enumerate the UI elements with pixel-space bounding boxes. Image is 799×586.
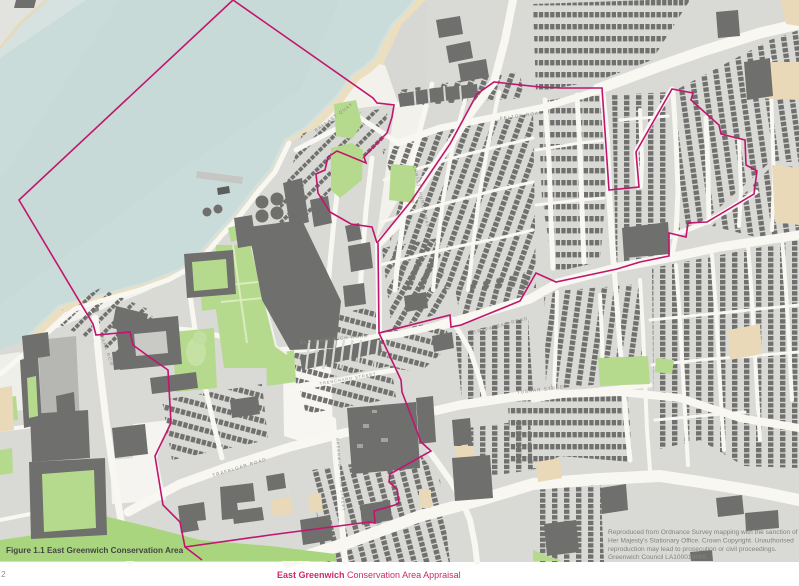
svg-text:2: 2 [1,569,6,579]
svg-text:East Greenwich Conservation Ar: East Greenwich Conservation Area Apprais… [277,570,461,580]
svg-text:Her Majesty's Stationary Offic: Her Majesty's Stationary Office. Crown C… [608,537,794,544]
svg-text:reproduction may lead to prose: reproduction may lead to prosecution or … [608,546,777,553]
svg-text:Figure 1.1 East Greenwich Cons: Figure 1.1 East Greenwich Conservation A… [6,546,184,555]
svg-text:Reproduced from Ordnance Surve: Reproduced from Ordnance Survey mapping … [608,529,798,536]
svg-text:Greenwich Council LA100019695.: Greenwich Council LA100019695. [608,554,708,561]
